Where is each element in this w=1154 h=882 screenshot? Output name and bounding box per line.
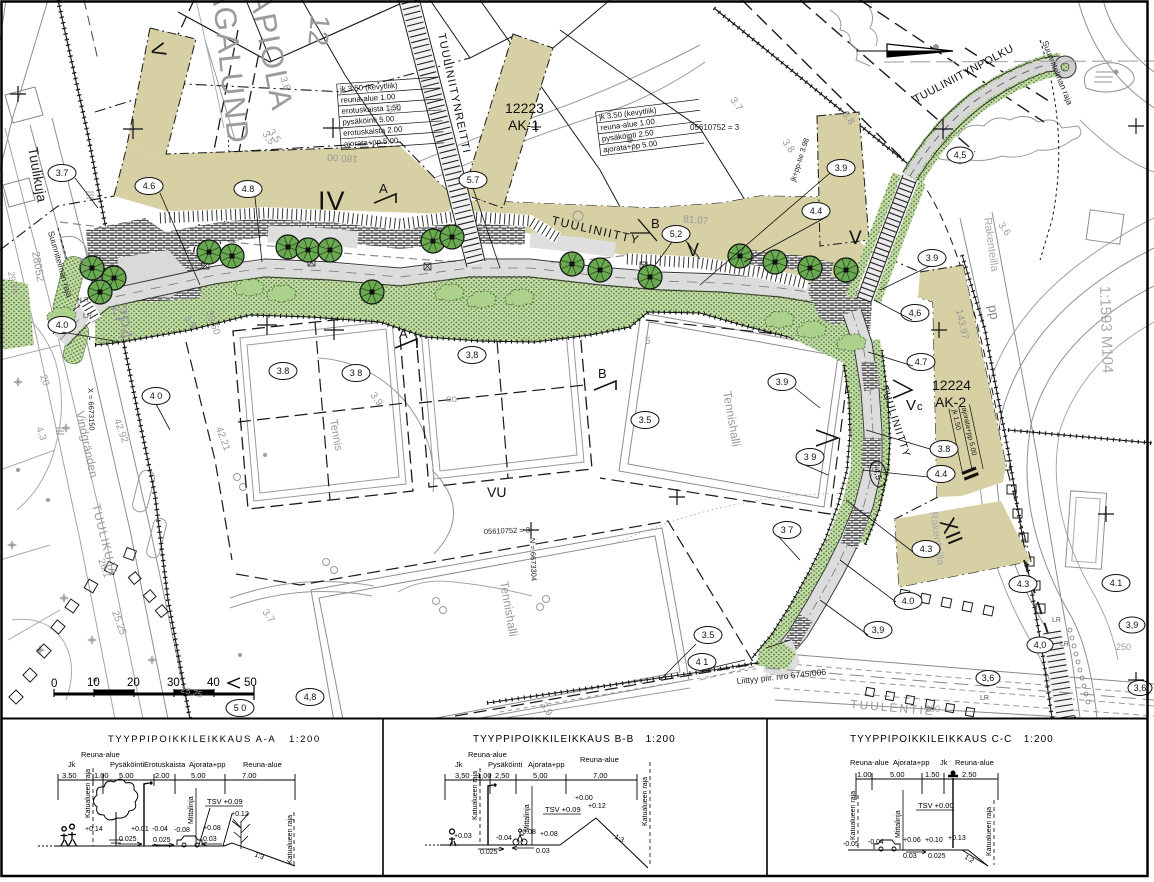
svg-text:40: 40 <box>207 677 220 689</box>
svg-text:0.025: 0.025 <box>119 836 137 843</box>
svg-text:12: 12 <box>302 13 336 47</box>
svg-text:2.50: 2.50 <box>962 770 977 779</box>
svg-text:-0.04: -0.04 <box>152 826 168 833</box>
svg-text:3,6: 3,6 <box>1134 683 1147 693</box>
svg-text:3.8: 3.8 <box>938 444 951 454</box>
svg-text:7,00: 7,00 <box>593 771 608 780</box>
svg-text:12224: 12224 <box>932 377 971 393</box>
svg-text:X = 6673150: X = 6673150 <box>86 388 96 431</box>
svg-text:Ajorata+pp: Ajorata+pp <box>189 760 226 769</box>
svg-text:3 9: 3 9 <box>804 452 817 462</box>
svg-text:Reuna-alue: Reuna-alue <box>243 760 282 769</box>
svg-text:4.0: 4.0 <box>56 320 69 330</box>
svg-text:1,00: 1,00 <box>477 771 492 780</box>
svg-text:+0.13: +0.13 <box>948 835 966 842</box>
svg-text:3.7: 3.7 <box>56 168 69 178</box>
svg-text:5.7: 5.7 <box>467 175 480 185</box>
svg-text:AK-1: AK-1 <box>508 117 539 133</box>
svg-text:Mittalinja: Mittalinja <box>524 804 531 832</box>
svg-text:4.4: 4.4 <box>810 206 823 216</box>
svg-text:5.00: 5.00 <box>119 771 134 780</box>
svg-text:N = 6673304: N = 6673304 <box>528 538 539 581</box>
svg-text:5,2: 5,2 <box>670 229 683 239</box>
svg-text:+0.08: +0.08 <box>540 831 558 838</box>
svg-text:0.03: 0.03 <box>903 853 917 860</box>
svg-text:c: c <box>917 401 923 413</box>
svg-text:Ajorata+pp: Ajorata+pp <box>528 760 565 769</box>
svg-text:Mittalinja: Mittalinja <box>895 810 902 838</box>
svg-text:+0.12: +0.12 <box>588 803 606 810</box>
svg-text:LR: LR <box>1060 641 1069 648</box>
svg-text:TYYPPIPOIKKILEIKKAUS C-C 1:2: TYYPPIPOIKKILEIKKAUS C-C 1:200 <box>850 734 1054 745</box>
svg-text:3.9: 3.9 <box>776 377 789 387</box>
svg-text:30: 30 <box>167 677 180 689</box>
svg-text:3,50: 3,50 <box>455 771 470 780</box>
svg-text:1:1593 M104: 1:1593 M104 <box>1096 286 1116 374</box>
svg-text:3.5: 3.5 <box>639 415 652 425</box>
svg-text:5.00: 5.00 <box>890 770 905 779</box>
svg-text:20: 20 <box>127 677 140 689</box>
svg-text:VU: VU <box>487 484 506 500</box>
svg-text:-0.04: -0.04 <box>496 835 512 842</box>
svg-text:3.8: 3.8 <box>277 366 290 376</box>
svg-text:+0.00: +0.00 <box>575 795 593 802</box>
svg-text:Katualueen raja: Katualueen raja <box>986 807 993 856</box>
svg-text:1.50: 1.50 <box>925 770 940 779</box>
svg-text:Pysäköinti: Pysäköinti <box>110 760 145 769</box>
svg-text:3,9: 3,9 <box>1126 620 1139 630</box>
svg-text:4.3: 4.3 <box>1017 579 1030 589</box>
svg-text:2.00: 2.00 <box>155 771 170 780</box>
svg-text:2,50: 2,50 <box>495 771 510 780</box>
svg-text:-0.05: -0.05 <box>843 841 859 848</box>
svg-text:3.50: 3.50 <box>62 771 77 780</box>
svg-text:LR: LR <box>83 313 92 320</box>
svg-text:4,6: 4,6 <box>909 308 922 318</box>
svg-text:Jk: Jk <box>68 760 76 769</box>
svg-text:Katualueen raja: Katualueen raja <box>85 769 92 818</box>
svg-text:4.7: 4.7 <box>915 357 928 367</box>
svg-text:Reuna-alue: Reuna-alue <box>468 750 507 759</box>
svg-text:10: 10 <box>87 677 100 689</box>
svg-text:4.8: 4.8 <box>242 184 255 194</box>
svg-text:3 8: 3 8 <box>350 368 363 378</box>
svg-text:0: 0 <box>51 678 57 690</box>
svg-text:+0.03: +0.03 <box>454 833 472 840</box>
svg-text:Ajorata+pp: Ajorata+pp <box>893 758 930 767</box>
svg-text:3,6: 3,6 <box>982 673 995 683</box>
svg-text:-0.04: -0.04 <box>868 839 884 846</box>
svg-text:TSV +0.00: TSV +0.00 <box>918 801 954 810</box>
svg-text:4,0: 4,0 <box>1034 640 1047 650</box>
svg-text:LR: LR <box>1052 617 1061 624</box>
svg-text:12223: 12223 <box>505 100 544 116</box>
svg-text:4,5: 4,5 <box>872 467 884 481</box>
svg-text:+0.12: +0.12 <box>231 811 249 818</box>
svg-text:3.9: 3.9 <box>835 163 848 173</box>
svg-text:pp: pp <box>985 304 1003 321</box>
svg-text:A: A <box>379 181 388 196</box>
svg-text:4 1: 4 1 <box>696 657 709 667</box>
svg-text:+0.10: +0.10 <box>925 837 943 844</box>
svg-text:V: V <box>849 228 862 249</box>
svg-text:TYYPPIPOIKKILEIKKAUS B-B 1:2: TYYPPIPOIKKILEIKKAUS B-B 1:200 <box>473 734 676 745</box>
svg-text:B: B <box>651 216 660 231</box>
svg-text:81.07: 81.07 <box>683 214 709 227</box>
svg-text:LR: LR <box>80 297 89 304</box>
svg-text:4.6: 4.6 <box>143 181 156 191</box>
svg-text:+0.01: +0.01 <box>131 826 149 833</box>
svg-text:Reuna-alue: Reuna-alue <box>580 755 619 764</box>
svg-text:Katualueen raja: Katualueen raja <box>642 777 649 826</box>
svg-text:LR: LR <box>980 695 989 702</box>
svg-text:0.03: 0.03 <box>203 836 217 843</box>
svg-text:Erotuskaista: Erotuskaista <box>144 760 186 769</box>
svg-text:4,8: 4,8 <box>304 692 317 702</box>
svg-text:TSV +0.09: TSV +0.09 <box>545 805 581 814</box>
svg-text:3,9: 3,9 <box>872 625 885 635</box>
svg-text:Pysäköinti: Pysäköinti <box>488 760 523 769</box>
svg-text:1.00: 1.00 <box>857 770 872 779</box>
svg-text:0.025: 0.025 <box>928 853 946 860</box>
svg-text:180.00: 180.00 <box>326 151 358 164</box>
svg-text:4 0: 4 0 <box>150 391 163 401</box>
svg-text:3.9: 3.9 <box>926 253 939 263</box>
svg-text:5.00: 5.00 <box>191 771 206 780</box>
svg-text:200: 200 <box>925 704 940 714</box>
svg-text:250: 250 <box>1116 642 1131 652</box>
svg-text:4.0: 4.0 <box>902 596 915 606</box>
svg-text:5 0: 5 0 <box>234 703 247 713</box>
svg-text:4.3: 4.3 <box>920 544 933 554</box>
svg-text:Reuna-alue: Reuna-alue <box>850 758 889 767</box>
svg-text:7.00: 7.00 <box>242 771 257 780</box>
svg-text:+0.06: +0.06 <box>903 837 921 844</box>
svg-text:5,00: 5,00 <box>533 771 548 780</box>
svg-text:B: B <box>598 366 607 381</box>
svg-text:oo: oo <box>446 394 458 405</box>
svg-text:-0.08: -0.08 <box>520 829 536 836</box>
svg-text:Katualueen raja: Katualueen raja <box>850 791 857 840</box>
svg-text:+0.14: +0.14 <box>85 826 103 833</box>
svg-text:4,5: 4,5 <box>954 150 967 160</box>
svg-text:Mittalinja: Mittalinja <box>188 796 195 824</box>
svg-text:1.00: 1.00 <box>94 771 109 780</box>
svg-text:V: V <box>906 397 916 414</box>
svg-text:3.5: 3.5 <box>702 630 715 640</box>
svg-text:4.1: 4.1 <box>1110 578 1123 588</box>
svg-text:+0.08: +0.08 <box>203 825 221 832</box>
svg-text:A: A <box>399 326 408 341</box>
svg-text:0.025: 0.025 <box>480 849 498 856</box>
svg-text:0.025: 0.025 <box>153 837 171 844</box>
svg-text:Reuna-alue: Reuna-alue <box>955 758 994 767</box>
svg-text:05610752 = 3: 05610752 = 3 <box>690 123 740 132</box>
svg-text:Katualueen raja: Katualueen raja <box>472 771 479 820</box>
svg-text:TYYPPIPOIKKILEIKKAUS A-A 1:2: TYYPPIPOIKKILEIKKAUS A-A 1:200 <box>108 734 321 745</box>
svg-text:5: 5 <box>645 336 651 347</box>
svg-text:Jk: Jk <box>455 760 463 769</box>
svg-text:3,8: 3,8 <box>466 350 479 360</box>
svg-text:3 7: 3 7 <box>781 525 794 535</box>
svg-text:-0.08: -0.08 <box>174 827 190 834</box>
svg-text:Jk: Jk <box>940 758 948 767</box>
svg-text:50: 50 <box>244 677 257 689</box>
svg-text:Reuna-alue: Reuna-alue <box>81 750 120 759</box>
svg-text:05610752 = 3: 05610752 = 3 <box>484 525 530 536</box>
svg-text:Katualueen raja: Katualueen raja <box>287 815 294 864</box>
svg-text:TSV +0.09: TSV +0.09 <box>207 797 243 806</box>
svg-text:0.03: 0.03 <box>536 848 550 855</box>
svg-text:4.4: 4.4 <box>935 469 948 479</box>
